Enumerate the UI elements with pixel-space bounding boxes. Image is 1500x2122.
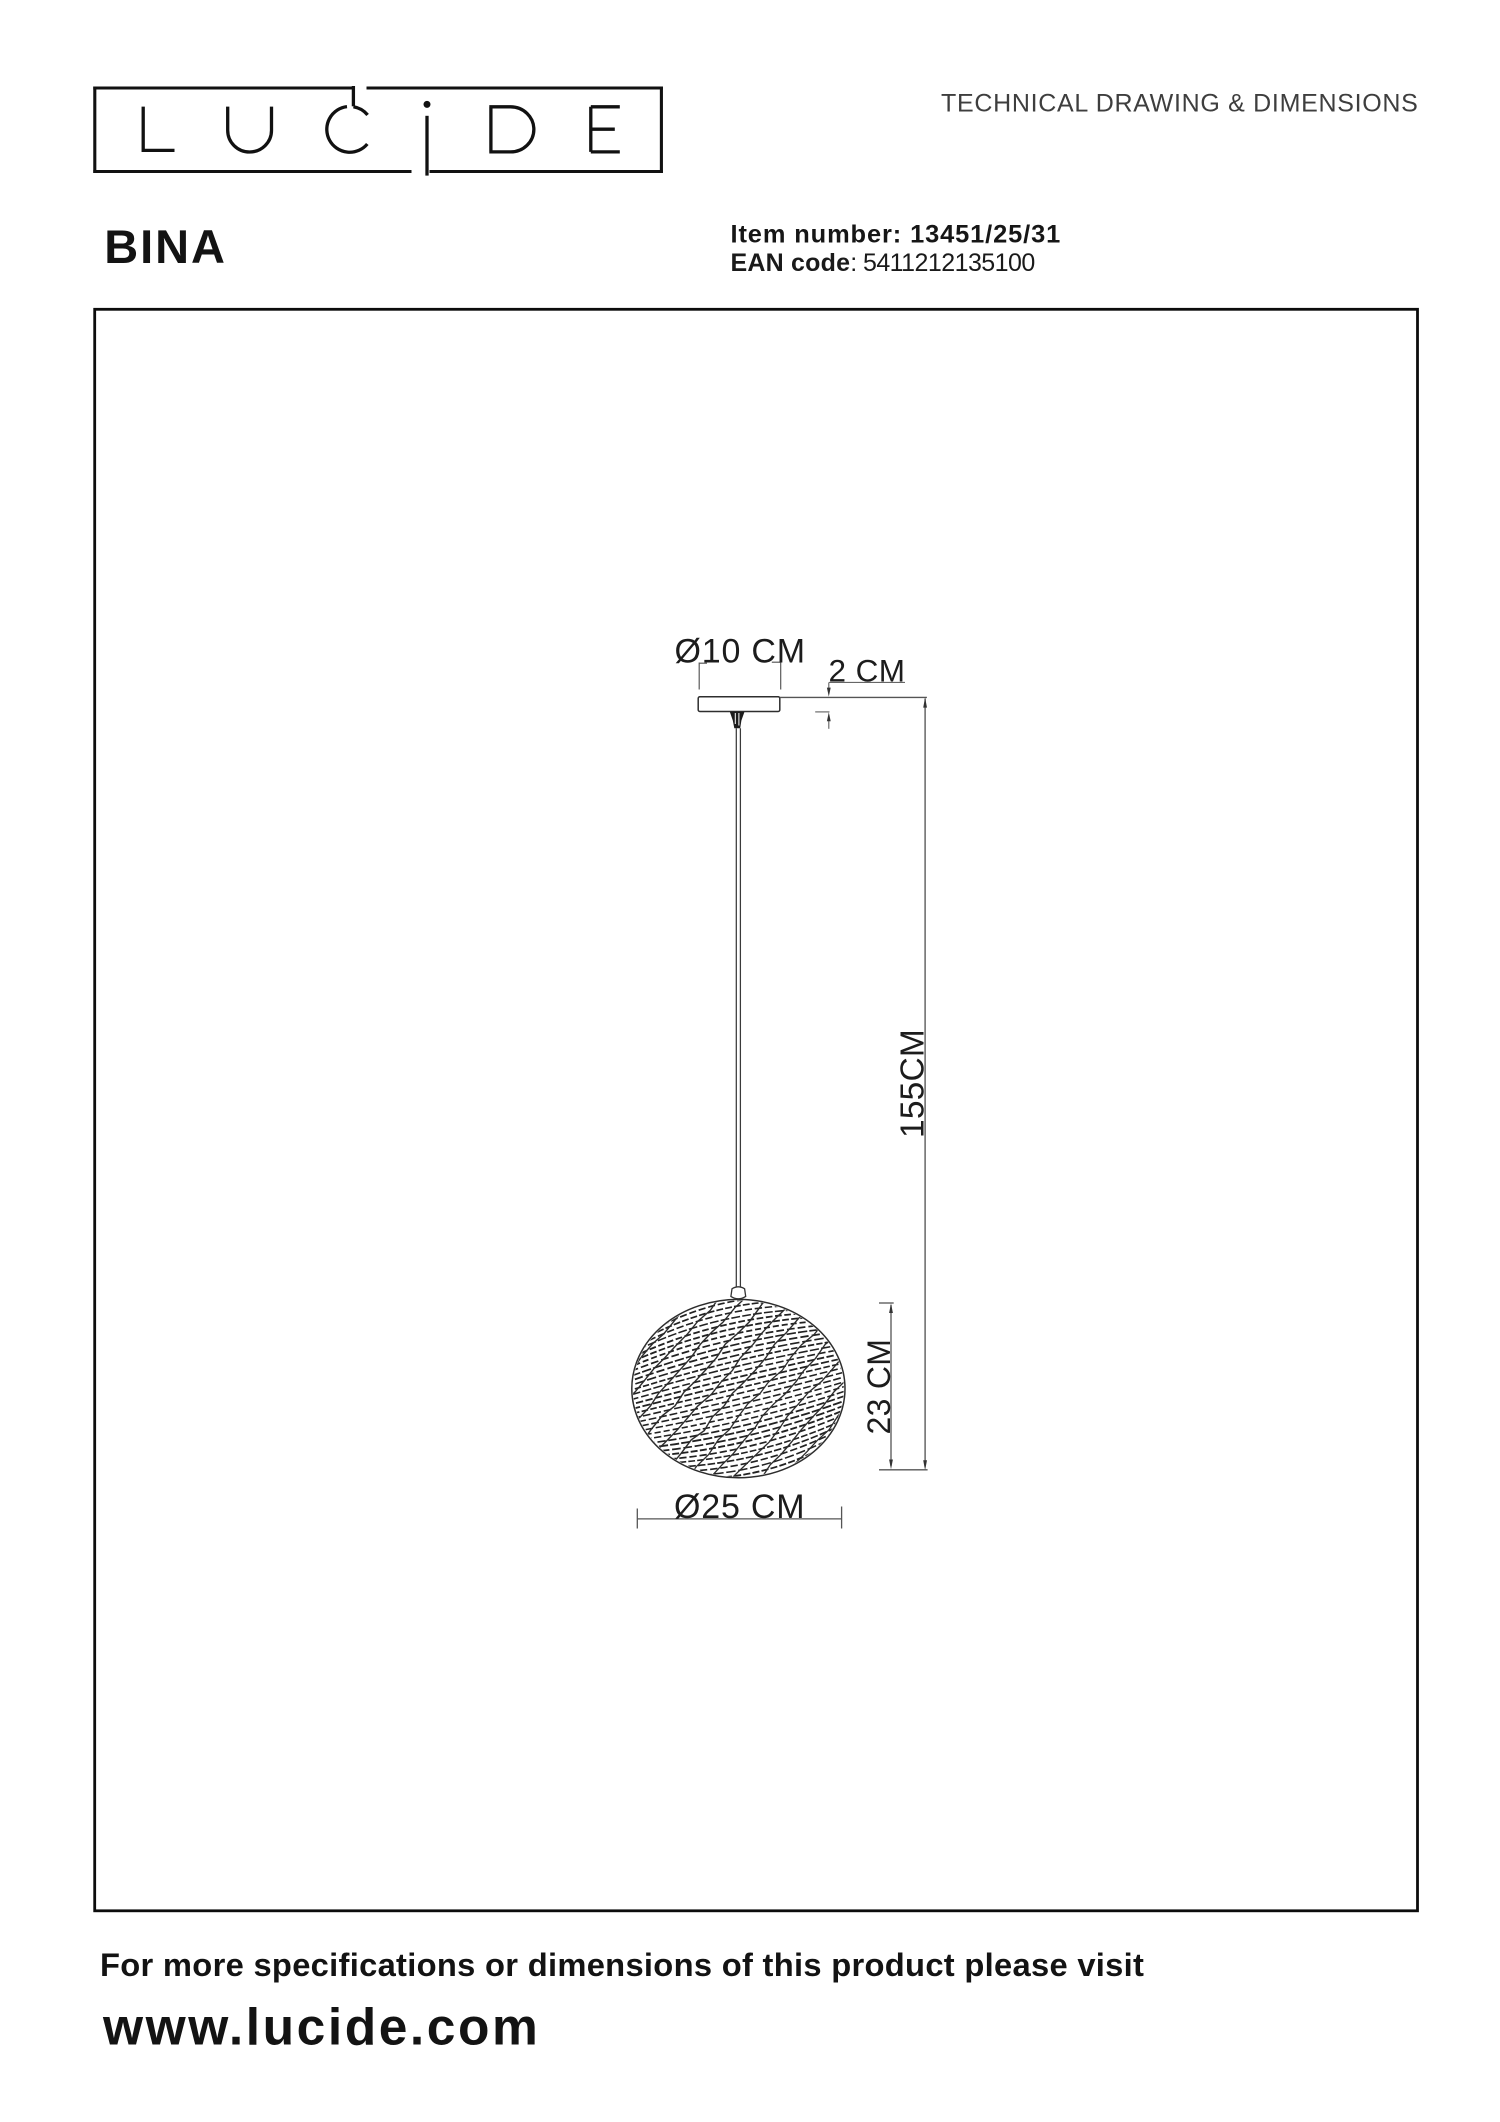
svg-text:Ø25 CM: Ø25 CM: [674, 1488, 805, 1526]
svg-text:Ø10 CM: Ø10 CM: [675, 632, 806, 670]
svg-text:For more specifications or dim: For more specifications or dimensions of…: [100, 1946, 1144, 1983]
svg-text:EAN code: 5411212135100: EAN code: 5411212135100: [731, 249, 1035, 277]
svg-text:www.lucide.com: www.lucide.com: [102, 1998, 540, 2056]
svg-text:Item number: 13451/25/31: Item number: 13451/25/31: [731, 221, 1062, 249]
svg-text:155CM: 155CM: [895, 1029, 932, 1138]
svg-text:2 CM: 2 CM: [829, 653, 906, 689]
svg-text:BINA: BINA: [104, 220, 226, 273]
svg-text:TECHNICAL DRAWING & DIMENSIONS: TECHNICAL DRAWING & DIMENSIONS: [941, 89, 1419, 117]
svg-text:23 CM: 23 CM: [861, 1339, 897, 1435]
